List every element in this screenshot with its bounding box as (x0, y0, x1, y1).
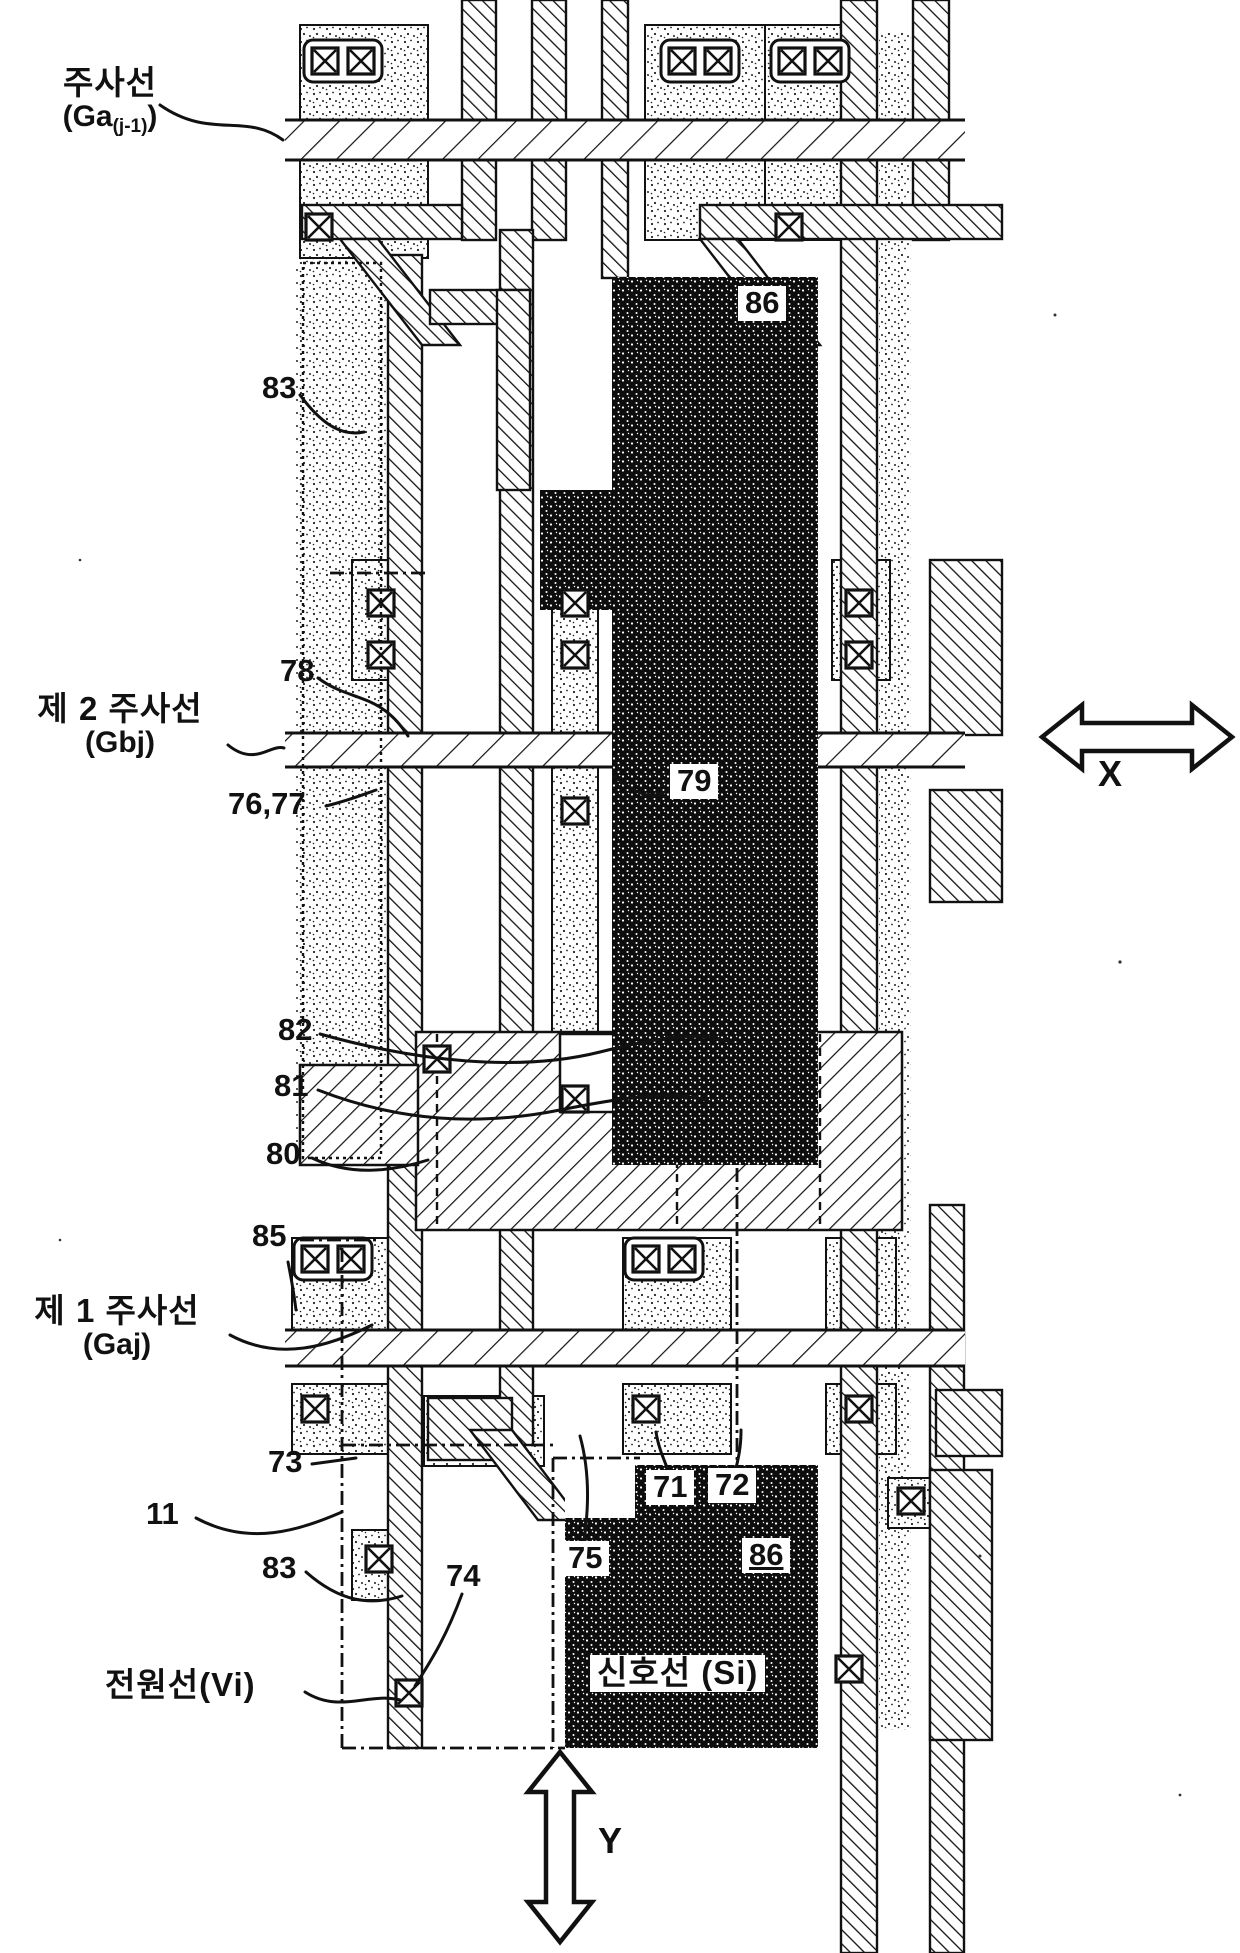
contact-via-icon (898, 1488, 924, 1514)
contact-via-icon (562, 798, 588, 824)
scan-line-prev-name: 주사선 (30, 66, 190, 101)
ref-72: 72 (708, 1468, 756, 1503)
contact-via-icon (846, 590, 872, 616)
contact-via-icon (846, 1396, 872, 1422)
contact-via-icon (348, 48, 374, 74)
ref-82: 82 (278, 1014, 312, 1047)
scan-line-ga-j-1-band (285, 120, 965, 160)
ref-80: 80 (266, 1138, 300, 1171)
ref-86-top: 86 (738, 286, 786, 321)
label-first-scan-line: 제 1 주사선 (Gaj) (6, 1294, 228, 1360)
x-axis-arrow (1042, 705, 1232, 769)
contact-via-icon (312, 48, 338, 74)
ref-83-bottom: 83 (262, 1552, 296, 1585)
patent-figure-canvas: 주사선 (Ga(j-1)) 83 78 제 2 주사선 (Gbj) 76,77 … (0, 0, 1240, 1953)
ref-83-top: 83 (262, 372, 296, 405)
contact-via-icon (669, 48, 695, 74)
ref-81: 81 (274, 1070, 308, 1103)
contact-via-icon (815, 48, 841, 74)
contact-via-icon (396, 1680, 422, 1706)
contact-via-icon (302, 1246, 328, 1272)
contact-via-icon (705, 48, 731, 74)
ref-73: 73 (268, 1446, 302, 1479)
contact-via-icon (836, 1656, 862, 1682)
label-scan-line-prev: 주사선 (Ga(j-1)) (30, 66, 190, 137)
contact-via-icon (302, 1396, 328, 1422)
contact-via-icon (669, 1246, 695, 1272)
ref-85: 85 (252, 1220, 286, 1253)
first-scan-line-gaj-band (285, 1330, 965, 1366)
contact-via-icon (776, 214, 802, 240)
ref-75: 75 (561, 1541, 609, 1576)
y-axis-arrow (528, 1752, 592, 1942)
contact-via-icon (366, 1546, 392, 1572)
ref-78: 78 (280, 655, 314, 688)
contact-via-icon (633, 1246, 659, 1272)
label-second-scan-line: 제 2 주사선 (Gbj) (10, 692, 230, 758)
ref-86-bottom: 86 (742, 1538, 790, 1573)
contact-via-icon (562, 642, 588, 668)
ref-76-77: 76,77 (228, 788, 306, 821)
ref-71: 71 (646, 1470, 694, 1505)
label-power-line: 전원선(Vi) (105, 1668, 256, 1703)
pixel-electrode-79 (612, 277, 818, 1165)
contact-via-icon (779, 48, 805, 74)
contact-via-icon (633, 1396, 659, 1422)
power-line-vi-column (388, 255, 422, 1748)
label-signal-line: 신호선 (Si) (590, 1655, 765, 1692)
y-axis-label: Y (598, 1822, 622, 1860)
x-axis-label: X (1098, 755, 1122, 793)
ref-74: 74 (446, 1560, 480, 1593)
contact-via-icon (846, 642, 872, 668)
ref-79: 79 (670, 764, 718, 799)
contact-via-icon (306, 214, 332, 240)
ref-11: 11 (146, 1498, 179, 1531)
contact-via-icon (562, 590, 588, 616)
